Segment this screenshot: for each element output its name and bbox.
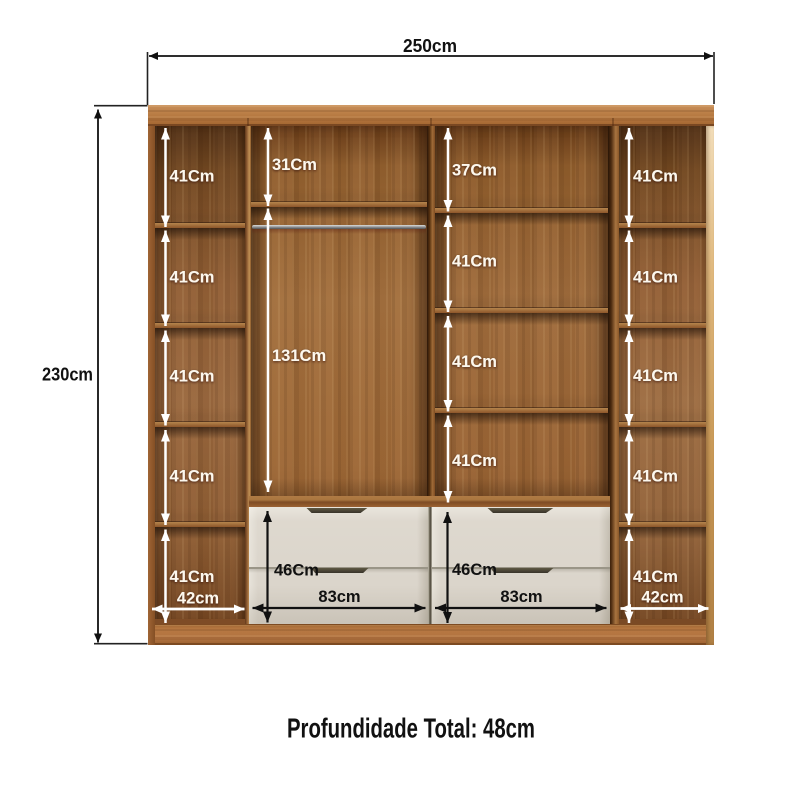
svg-text:Profundidade Total: 48cm: Profundidade Total: 48cm (287, 713, 535, 744)
svg-text:41Cm: 41Cm (170, 568, 215, 586)
svg-text:46Cm: 46Cm (274, 562, 319, 580)
svg-text:41Cm: 41Cm (452, 353, 497, 371)
svg-text:42cm: 42cm (641, 589, 683, 607)
svg-text:42cm: 42cm (177, 590, 219, 608)
svg-text:46Cm: 46Cm (452, 561, 497, 579)
svg-text:41Cm: 41Cm (633, 468, 678, 486)
svg-text:41Cm: 41Cm (633, 367, 678, 385)
svg-text:250cm: 250cm (403, 35, 457, 56)
svg-text:31Cm: 31Cm (272, 156, 317, 174)
svg-text:41Cm: 41Cm (452, 452, 497, 470)
svg-text:41Cm: 41Cm (170, 468, 215, 486)
svg-text:131Cm: 131Cm (272, 347, 326, 365)
svg-text:37Cm: 37Cm (452, 162, 497, 180)
svg-text:41Cm: 41Cm (633, 568, 678, 586)
svg-text:41Cm: 41Cm (170, 168, 215, 186)
svg-text:41Cm: 41Cm (633, 168, 678, 186)
svg-text:83cm: 83cm (500, 588, 542, 606)
svg-text:41Cm: 41Cm (452, 253, 497, 271)
svg-text:41Cm: 41Cm (170, 269, 215, 287)
svg-text:83cm: 83cm (318, 588, 360, 606)
svg-text:230cm: 230cm (42, 364, 93, 385)
svg-text:41Cm: 41Cm (170, 368, 215, 386)
svg-text:41Cm: 41Cm (633, 269, 678, 287)
